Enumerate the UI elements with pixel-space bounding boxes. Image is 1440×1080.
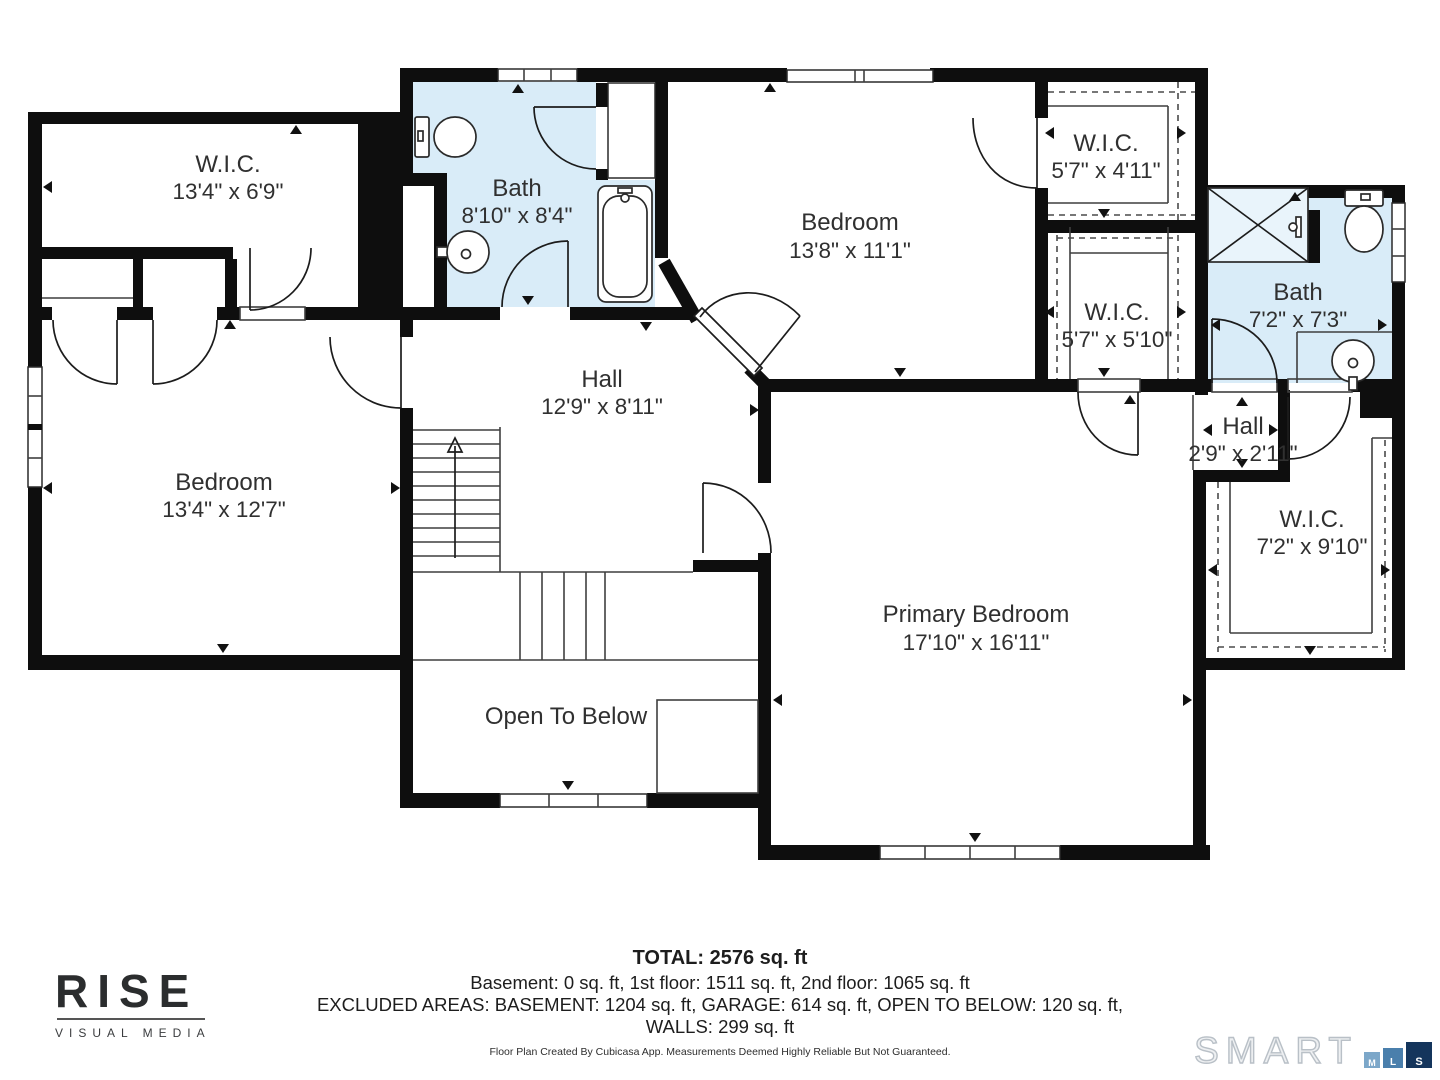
room-label-wic-1: W.I.C.5'7" x 4'11" bbox=[1051, 130, 1160, 183]
mls-m-square: M bbox=[1364, 1052, 1380, 1068]
svg-text:W.I.C.: W.I.C. bbox=[1073, 130, 1138, 157]
rise-logo-divider bbox=[57, 1018, 205, 1020]
window-bedroom-tr bbox=[787, 70, 933, 82]
mls-l-square: L bbox=[1383, 1048, 1403, 1068]
rise-logo-wordmark: RISE bbox=[55, 968, 245, 1014]
window-bath-top bbox=[498, 69, 577, 81]
svg-text:Bath: Bath bbox=[492, 175, 541, 202]
svg-text:7'2" x 9'10": 7'2" x 9'10" bbox=[1257, 534, 1368, 559]
svg-text:2'9" x 2'11": 2'9" x 2'11" bbox=[1188, 441, 1297, 466]
window-bath-right bbox=[1392, 203, 1405, 282]
svg-text:5'7" x 5'10": 5'7" x 5'10" bbox=[1062, 327, 1173, 352]
svg-text:Bath: Bath bbox=[1273, 279, 1322, 306]
room-label-wic-right: W.I.C.7'2" x 9'10" bbox=[1257, 506, 1368, 559]
svg-text:7'2" x 7'3": 7'2" x 7'3" bbox=[1249, 307, 1347, 332]
svg-text:W.I.C.: W.I.C. bbox=[1084, 299, 1149, 326]
staircase bbox=[413, 427, 758, 660]
toilet-right-icon bbox=[1345, 190, 1383, 252]
smart-logo-wordmark: SMART bbox=[1194, 1032, 1358, 1069]
room-label-wic-tl: W.I.C.13'4" x 6'9" bbox=[173, 151, 284, 204]
svg-text:W.I.C.: W.I.C. bbox=[1279, 506, 1344, 533]
svg-text:8'10" x 8'4": 8'10" x 8'4" bbox=[462, 203, 573, 228]
mls-s-square: S bbox=[1406, 1042, 1432, 1068]
svg-text:13'4" x 12'7": 13'4" x 12'7" bbox=[162, 497, 285, 522]
door-bedroom-tr-diagonal bbox=[694, 293, 800, 376]
door-bedroom-left bbox=[330, 337, 401, 408]
rise-visual-media-logo: RISE VISUAL MEDIA bbox=[55, 968, 245, 1040]
svg-text:13'8" x 11'1": 13'8" x 11'1" bbox=[789, 238, 911, 263]
room-label-bedroom-left: Bedroom13'4" x 12'7" bbox=[162, 469, 285, 522]
door-primary bbox=[703, 483, 771, 553]
door-closet-1 bbox=[53, 320, 117, 384]
room-label-open-below: Open To Below bbox=[485, 703, 648, 730]
toilet-icon bbox=[415, 117, 476, 157]
door-wic-1 bbox=[973, 118, 1037, 188]
room-label-hall-center: Hall12'9" x 8'11" bbox=[541, 366, 663, 419]
window-bedroom-left bbox=[28, 367, 42, 487]
room-label-primary: Primary Bedroom17'10" x 16'11" bbox=[883, 601, 1070, 655]
window-primary bbox=[880, 846, 1060, 859]
svg-text:Bedroom: Bedroom bbox=[175, 469, 272, 496]
svg-text:Primary Bedroom: Primary Bedroom bbox=[883, 601, 1070, 628]
svg-text:Bedroom: Bedroom bbox=[801, 209, 898, 236]
svg-text:Open To Below: Open To Below bbox=[485, 703, 648, 730]
floor-plan: W.I.C.13'4" x 6'9" Bath8'10" x 8'4" Bedr… bbox=[0, 0, 1440, 940]
door-wic-tl bbox=[250, 248, 311, 310]
smart-mls-logo: SMART M L S bbox=[1194, 1032, 1432, 1069]
mls-squares: M L S bbox=[1364, 1042, 1432, 1068]
bathtub-icon bbox=[598, 186, 652, 302]
window-open-below bbox=[500, 794, 647, 807]
door-closet-2 bbox=[153, 320, 217, 384]
svg-text:Hall: Hall bbox=[1222, 413, 1263, 440]
svg-text:W.I.C.: W.I.C. bbox=[195, 151, 260, 178]
svg-text:12'9" x 8'11": 12'9" x 8'11" bbox=[541, 394, 663, 419]
svg-text:Hall: Hall bbox=[581, 366, 622, 393]
room-label-bedroom-tr: Bedroom13'8" x 11'1" bbox=[789, 209, 911, 263]
svg-text:13'4" x 6'9": 13'4" x 6'9" bbox=[173, 179, 284, 204]
rise-logo-tagline: VISUAL MEDIA bbox=[55, 1026, 245, 1040]
room-label-wic-2: W.I.C.5'7" x 5'10" bbox=[1062, 299, 1173, 352]
svg-text:17'10" x 16'11": 17'10" x 16'11" bbox=[903, 630, 1050, 655]
total-area-text: TOTAL: 2576 sq. ft bbox=[0, 947, 1440, 970]
svg-text:5'7" x 4'11": 5'7" x 4'11" bbox=[1051, 158, 1160, 183]
stairs-up-arrow bbox=[448, 438, 462, 558]
